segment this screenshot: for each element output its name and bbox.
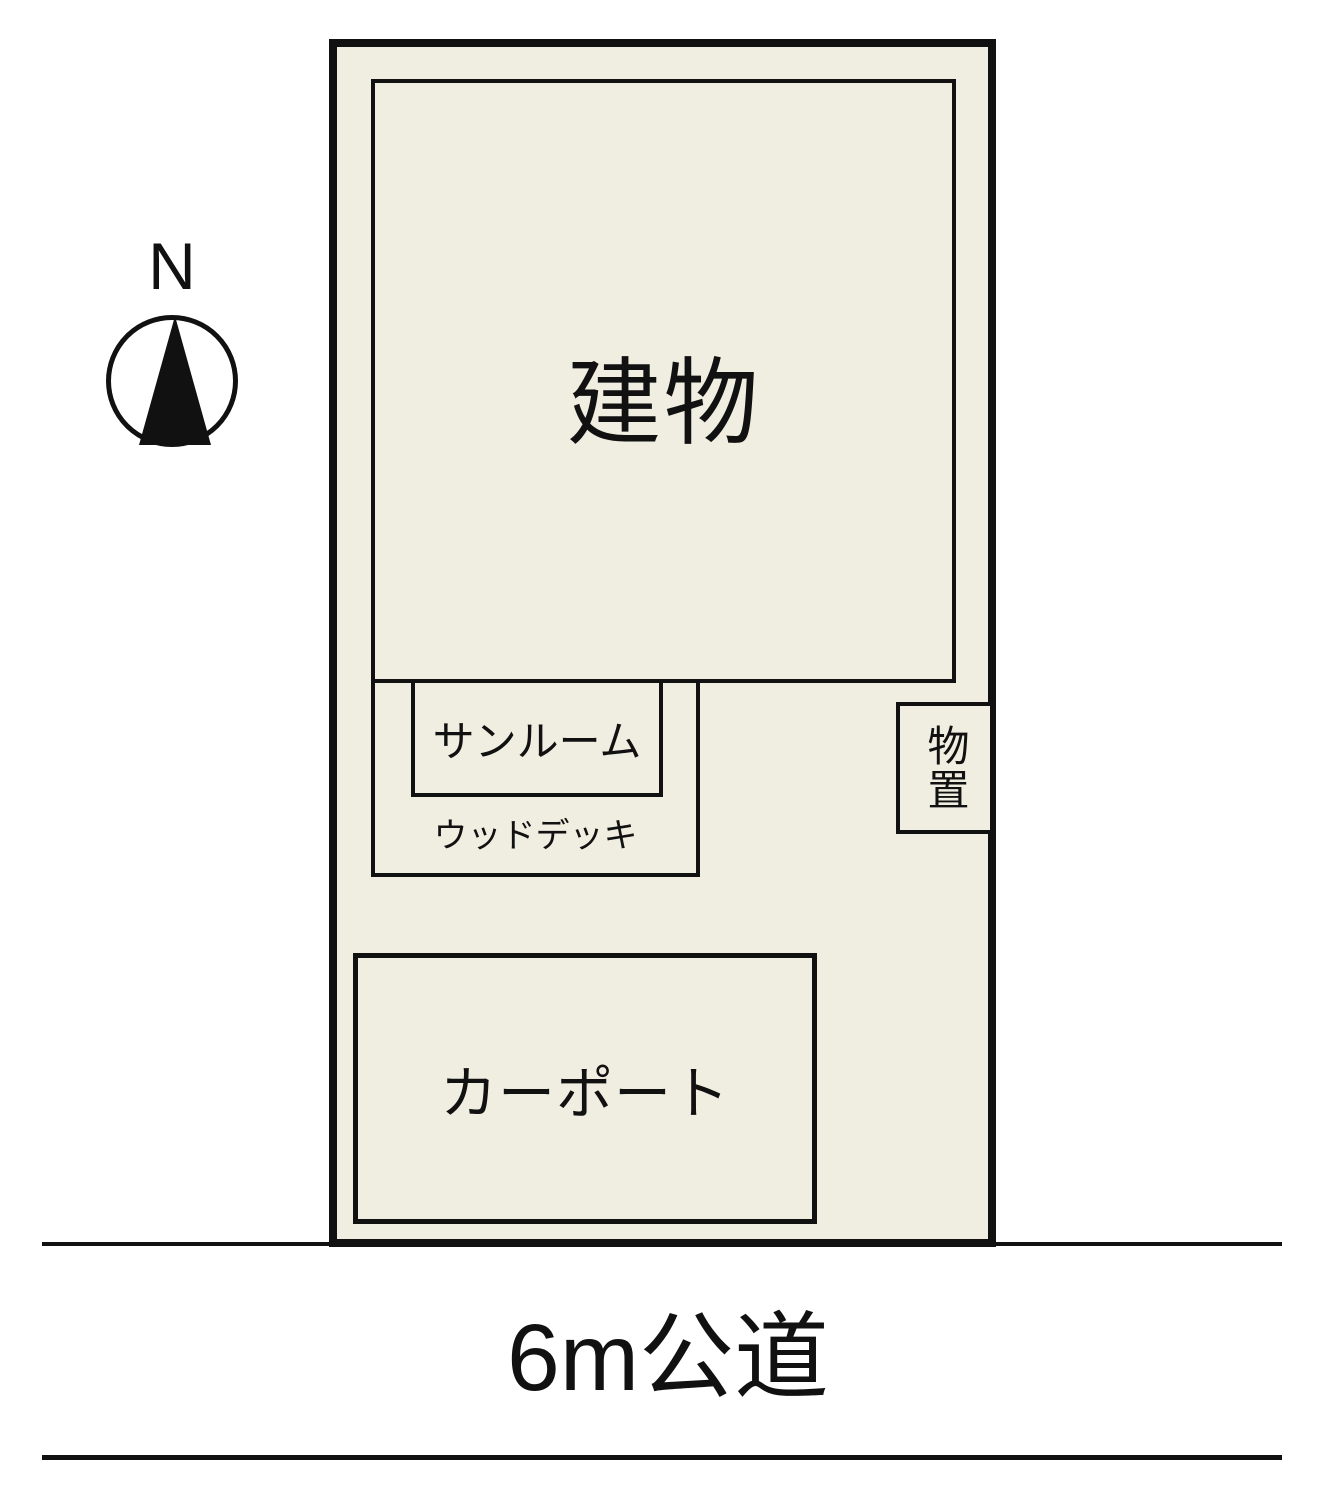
building-label: 建物 [566, 327, 760, 464]
sunroom-area: サンルーム [411, 679, 663, 797]
wood-deck-label: ウッドデッキ [434, 808, 638, 857]
sunroom-label: サンルーム [433, 708, 642, 769]
storage-shed-label: 物置 [924, 724, 966, 812]
site-plan-diagram: N 建物 ウッドデッキ サンルーム 物置 カーポート 6m公道 [0, 0, 1325, 1500]
compass-north-label: N [129, 226, 215, 306]
storage-shed-area: 物置 [896, 702, 990, 834]
road-label: 6m公道 [368, 1300, 968, 1416]
building-area: 建物 [371, 79, 956, 683]
carport-label: カーポート [440, 1048, 730, 1130]
road-edge-line-lower [42, 1455, 1282, 1460]
carport-area: カーポート [353, 953, 817, 1224]
